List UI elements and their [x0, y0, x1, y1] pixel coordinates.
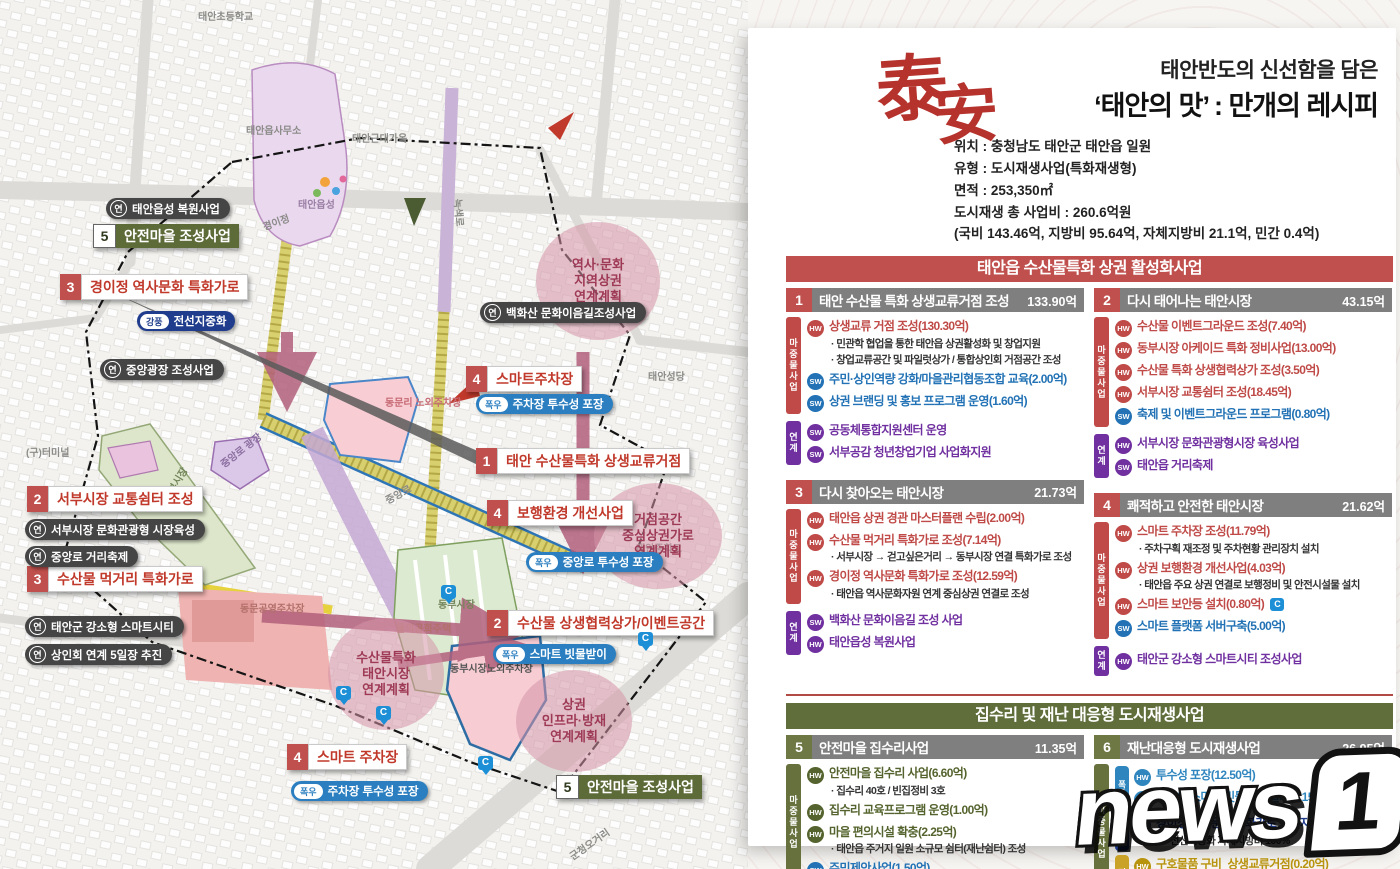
project-sub: · 태안읍 주거지 일원 소규모 쉼터(재난쉼터) 조성 — [831, 841, 1026, 856]
infographic-canvas: 5안전마을 조성사업3경이정 역사문화 특화가로4스마트주차장1태안 수산물특화… — [0, 0, 1400, 869]
pill-text: 주차장 투수성 포장 — [513, 396, 604, 412]
plan-circle-line: 연계계획 — [550, 729, 598, 745]
section-number: 4 — [1094, 493, 1120, 517]
map-label-number: 2 — [487, 610, 508, 636]
link-badge: 연 — [484, 304, 501, 321]
map-area-label: (구)터미널 — [26, 444, 69, 459]
watermark-one-badge: 1 — [1303, 746, 1400, 858]
map-label-text: 경이정 역사문화 특화가로 — [81, 274, 248, 300]
hw-badge: HW — [1115, 386, 1132, 403]
project-text: 주민제안사업(1.50억) — [829, 861, 930, 869]
map-area-label: 태안근대가옥 — [352, 130, 407, 145]
section-header: 2다시 태어나는 태안시장43.15억 — [1094, 288, 1392, 312]
section-3: 3다시 찾아오는 태안시장21.73억마중물사업HW태안읍 상권 경관 마스터플… — [786, 480, 1084, 662]
project-text: 동부시장 아케이드 특화 정비사업(13.00억) — [1137, 341, 1336, 357]
map-area-label: 경이정 — [260, 210, 291, 234]
project-row: SW주민·상인역량 강화/마을관리협동조합 교육(2.00억) — [807, 372, 1084, 390]
map-linked-project-pill: 연백화산 문화이음길조성사업 — [480, 302, 646, 323]
group-label: 연계 — [1094, 646, 1109, 676]
project-text: 주민·상인역량 강화/마을관리협동조합 교육(2.00억) — [829, 372, 1067, 388]
news1-watermark: news1 — [1069, 746, 1400, 868]
map-area-label: 태안초등학교 — [198, 8, 253, 23]
cctv-map-marker: C — [441, 585, 457, 604]
sw-badge: SW — [1115, 620, 1132, 637]
section-title: 다시 찾아오는 태안시장 — [812, 482, 944, 502]
project-row: HW동부시장 아케이드 특화 정비사업(13.00억) — [1115, 341, 1392, 359]
pill-text: 백화산 문화이음길조성사업 — [506, 305, 636, 321]
map-area-label: 태안읍사무소 — [246, 122, 301, 137]
hazard-badge: 폭우 — [496, 647, 525, 662]
map-area-label: 군청오거리 — [566, 824, 612, 863]
map-label-text: 태안 수산물특화 상생교류거점 — [497, 448, 690, 474]
info-panel: 泰 安 태안반도의 신선함을 담은 ‘태안의 맛’ : 만개의 레시피 위치 :… — [748, 28, 1396, 846]
plan-circle-line: 수산물특화 — [356, 650, 416, 666]
project-text: 상권 보행환경 개선사업(4.03억) — [1137, 561, 1360, 577]
project-row: HW태안읍 상권 경관 마스터플랜 수립(2.00억) — [807, 511, 1084, 529]
hw-badge: HW — [1115, 598, 1132, 615]
section-header: 5안전마을 집수리사업11.35억 — [786, 735, 1084, 759]
group-label: 마중물사업 — [786, 317, 801, 414]
section-header: 3다시 찾아오는 태안시장21.73억 — [786, 480, 1084, 504]
link-badge: 연 — [29, 548, 46, 565]
sw-badge: SW — [1115, 459, 1132, 476]
group-label: 연계 — [1094, 434, 1109, 478]
map-project-label: 5안전마을 조성사업 — [93, 224, 239, 248]
project-row: HW경이정 역사문화 특화가로 조성(12.59억)· 태안읍 역사문화자원 연… — [807, 569, 1084, 602]
map-project-label: 2서부시장 교통쉼터 조성 — [27, 486, 203, 512]
section-header: 1태안 수산물 특화 상생교류거점 조성133.90억 — [786, 288, 1084, 312]
sw-badge: SW — [807, 614, 824, 631]
plan-circle-line: 역사·문화 — [572, 257, 624, 273]
map-label-number: 4 — [487, 500, 508, 526]
map-label-text: 안전마을 조성사업 — [116, 224, 239, 248]
cctv-pin — [482, 770, 490, 775]
map-project-label: 2수산물 상생협력상가/이벤트공간 — [487, 610, 714, 636]
project-sub: · 주차구획 재조정 및 주차현황 관리장치 설치 — [1139, 541, 1319, 556]
map-label-text: 안전마을 조성사업 — [579, 775, 702, 799]
cctv-icon: C — [441, 585, 456, 599]
map-project-label: 4보행환경 개선사업 — [487, 500, 633, 526]
section-title: 안전마을 집수리사업 — [812, 737, 929, 757]
project-row: SW백화산 문화이음길 조성 사업 — [807, 613, 1084, 631]
cctv-icon: C — [336, 686, 351, 700]
hazard-badge: 강풍 — [140, 314, 169, 329]
group-label: 연계 — [786, 611, 801, 655]
hw-badge: HW — [807, 512, 824, 529]
hw-badge: HW — [1115, 653, 1132, 670]
map-area-label: 태안성당 — [648, 368, 685, 383]
project-text: 태안읍성 복원사업 — [829, 635, 915, 651]
pill-text: 태안군 강소형 스마트시티 — [51, 619, 174, 635]
plan-circle-line: 상권 — [562, 697, 586, 713]
hw-badge: HW — [807, 636, 824, 653]
map-hazard-pill: 폭우스마트 빗물받이 — [493, 644, 616, 664]
hw-badge: HW — [1115, 562, 1132, 579]
plan-circle-line: 중심상권가로 — [622, 528, 694, 544]
map-linked-project-pill: 연중앙광장 조성사업 — [100, 359, 224, 380]
map-project-label: 4스마트 주차장 — [287, 744, 407, 770]
section-title: 태안 수산물 특화 상생교류거점 조성 — [812, 290, 1009, 310]
plan-circle-line: 태안시장 — [362, 666, 410, 682]
sw-badge: SW — [807, 373, 824, 390]
cctv-icon: C — [638, 632, 653, 646]
hw-badge: HW — [1115, 342, 1132, 359]
link-badge: 연 — [29, 521, 46, 538]
hw-badge: HW — [807, 826, 824, 843]
map-project-label: 4스마트주차장 — [466, 366, 582, 392]
map-project-label: 5안전마을 조성사업 — [556, 775, 702, 799]
project-text: 백화산 문화이음길 조성 사업 — [829, 613, 962, 629]
map-label-text: 스마트 주차장 — [308, 744, 407, 770]
hw-badge: HW — [1115, 525, 1132, 542]
map-label-number: 3 — [60, 274, 81, 300]
section-amount: 11.35억 — [1035, 738, 1084, 757]
hw-badge: HW — [807, 320, 824, 337]
map-project-label: 3수산물 먹거리 특화가로 — [27, 566, 203, 592]
plan-circle-line: 지역상권 — [574, 273, 622, 289]
project-text: 스마트 보안등 설치(0.80억)C — [1137, 597, 1284, 613]
project-row: HW태안읍성 복원사업 — [807, 635, 1084, 653]
sw-badge: SW — [807, 424, 824, 441]
cctv-map-marker: C — [336, 686, 352, 705]
project-sub: · 태안읍 주요 상권 연결로 보행정비 및 안전시설물 설치 — [1139, 577, 1360, 592]
tagline: 태안반도의 신선함을 담은 — [1078, 54, 1378, 84]
group-label: 연계 — [786, 421, 801, 465]
group-label: 마중물사업 — [1094, 522, 1109, 639]
section-number: 5 — [786, 735, 812, 759]
group-label: 마중물사업 — [1094, 317, 1109, 427]
project-row: HW수산물 먹거리 특화가로 조성(7.14억)· 서부시장 → 걷고싶은거리 … — [807, 533, 1084, 566]
project-text: 태안읍 거리축제 — [1137, 458, 1213, 474]
map-linked-project-pill: 연태안읍성 복원사업 — [106, 198, 230, 219]
map-label-number: 4 — [287, 744, 308, 770]
project-text: 수산물 이벤트그라운드 조성(7.40억) — [1137, 319, 1306, 335]
hazard-badge: 폭우 — [529, 555, 558, 570]
map-area-label: 중앙로 — [382, 480, 413, 506]
map-label-number: 3 — [27, 566, 48, 592]
map-label-text: 수산물 상생협력상가/이벤트공간 — [508, 610, 714, 636]
project-text: 스마트 주차장 조성(11.79억) — [1137, 524, 1319, 540]
project-text: 태안군 강소형 스마트시티 조성사업 — [1137, 652, 1302, 668]
plan-circle: 상권인프라·방재연계계획 — [516, 670, 632, 772]
info-area: 면적 : 253,350㎡ — [954, 180, 1319, 202]
hw-badge: HW — [807, 534, 824, 551]
map-area-label: 동문공영주차장 — [240, 600, 304, 615]
project-row: SW스마트 플랫폼 서버구축(5.00억) — [1115, 619, 1392, 637]
section-header: 4쾌적하고 안전한 태안시장21.62억 — [1094, 493, 1392, 517]
section-amount: 43.15억 — [1342, 291, 1392, 310]
project-row: HW수산물 이벤트그라운드 조성(7.40억) — [1115, 319, 1392, 337]
map-label-text: 보행환경 개선사업 — [508, 500, 633, 526]
map-area-label: 중앙로 광장 — [217, 429, 265, 471]
project-text: 공동체통합지원센터 운영 — [829, 423, 947, 439]
project-text: 서부시장 문화관광형시장 육성사업 — [1137, 436, 1299, 452]
section-4: 4쾌적하고 안전한 태안시장21.62억마중물사업HW스마트 주차장 조성(11… — [1094, 493, 1392, 683]
info-location: 위치 : 충청남도 태안군 태안읍 일원 — [954, 136, 1319, 158]
section-title: 쾌적하고 안전한 태안시장 — [1120, 495, 1263, 515]
project-text: 마을 편의시설 확충(2.25억) — [829, 825, 1026, 841]
project-row: HW안전마을 집수리 사업(6.60억)· 집수리 40호 / 빈집정비 3호 — [807, 766, 1084, 799]
cctv-pin — [642, 646, 650, 651]
sw-badge: SW — [1115, 408, 1132, 425]
section-1: 1태안 수산물 특화 상생교류거점 조성133.90억마중물사업HW상생교류 거… — [786, 288, 1084, 472]
project-row: HW수산물 특화 상생협력상가 조성(3.50억) — [1115, 363, 1392, 381]
plan-circle-line: 연계계획 — [362, 682, 410, 698]
project-row: HW서부시장 문화관광형시장 육성사업 — [1115, 436, 1392, 454]
watermark-news-text: news — [1070, 751, 1305, 866]
section-5: 5안전마을 집수리사업11.35억마중물사업HW안전마을 집수리 사업(6.60… — [786, 735, 1084, 869]
cctv-map-marker: C — [638, 632, 654, 651]
cctv-pin — [340, 700, 348, 705]
project-row: SW서부공감 청년창업기업 사업화지원 — [807, 445, 1084, 463]
section-number: 2 — [1094, 288, 1120, 312]
section-2: 2다시 태어나는 태안시장43.15억마중물사업HW수산물 이벤트그라운드 조성… — [1094, 288, 1392, 485]
project-text: 태안읍 상권 경관 마스터플랜 수립(2.00억) — [829, 511, 1024, 527]
pill-text: 스마트 빗물받이 — [530, 646, 607, 662]
map-label-layer: 5안전마을 조성사업3경이정 역사문화 특화가로4스마트주차장1태안 수산물특화… — [0, 0, 748, 869]
map-label-number: 5 — [93, 224, 116, 248]
hw-badge: HW — [1115, 364, 1132, 381]
page-title: ‘태안의 맛’ : 만개의 레시피 — [998, 84, 1378, 123]
project-text: 수산물 먹거리 특화가로 조성(7.14억) — [829, 533, 1072, 549]
map-linked-project-pill: 연태안군 강소형 스마트시티 — [25, 616, 184, 637]
section-number: 1 — [786, 288, 812, 312]
pill-text: 상인회 연계 5일장 추진 — [51, 647, 162, 663]
link-badge: 연 — [104, 361, 121, 378]
project-row: HW태안군 강소형 스마트시티 조성사업 — [1115, 652, 1392, 670]
hw-badge: HW — [1115, 437, 1132, 454]
plan-circle-line: 거점공간 — [634, 512, 682, 528]
project-row: HW상권 보행환경 개선사업(4.03억)· 태안읍 주요 상권 연결로 보행정… — [1115, 561, 1392, 594]
group-label: 마중물사업 — [786, 764, 801, 869]
project-row: HW집수리 교육프로그램 운영(1.00억) — [807, 803, 1084, 821]
cctv-icon: C — [376, 706, 391, 720]
project-text: 서부공감 청년창업기업 사업화지원 — [829, 445, 991, 461]
section-amount: 21.73억 — [1034, 482, 1084, 501]
map-label-text: 서부시장 교통쉼터 조성 — [48, 486, 203, 512]
section-amount: 133.90억 — [1027, 291, 1084, 310]
project-text: 스마트 플랫폼 서버구축(5.00억) — [1137, 619, 1285, 635]
project-row: SW상권 브랜딩 및 홍보 프로그램 운영(1.60억) — [807, 394, 1084, 412]
cctv-pin — [445, 599, 453, 604]
project-row: HW스마트 주차장 조성(11.79억)· 주차구획 재조정 및 주차현황 관리… — [1115, 524, 1392, 557]
info-budget: 도시재생 총 사업비 : 260.6억원 — [954, 202, 1319, 224]
hazard-badge: 폭우 — [294, 784, 323, 799]
table-banner: 집수리 및 재난 대응형 도시재생사업 — [786, 703, 1393, 729]
project-table: 태안읍 수산물특화 상권 활성화사업1태안 수산물 특화 상생교류거점 조성13… — [786, 256, 1393, 696]
project-sub: · 서부시장 → 걷고싶은거리 → 동부시장 연결 특화가로 조성 — [831, 549, 1072, 564]
cctv-map-marker: C — [376, 706, 392, 725]
hw-badge: HW — [807, 767, 824, 784]
info-budget-detail: (국비 143.46억, 지방비 95.64억, 자체지방비 21.1억, 민간… — [954, 223, 1319, 245]
map-label-text: 스마트주차장 — [487, 366, 582, 392]
hazard-badge: 폭우 — [479, 397, 508, 412]
section-number: 3 — [786, 480, 812, 504]
info-type: 유형 : 도시재생사업(특화재생형) — [954, 158, 1319, 180]
project-row: HW스마트 보안등 설치(0.80억)C — [1115, 597, 1392, 615]
cctv-icon: C — [478, 756, 493, 770]
map-project-label: 3경이정 역사문화 특화가로 — [60, 274, 248, 300]
project-text: 수산물 특화 상생협력상가 조성(3.50억) — [1137, 363, 1319, 379]
project-row: SW축제 및 이벤트그라운드 프로그램(0.80억) — [1115, 407, 1392, 425]
map-label-number: 5 — [556, 775, 579, 799]
project-sub: · 창업교류공간 및 파일럿상가 / 통합상인회 거점공간 조성 — [831, 352, 1061, 367]
project-row: SW공동체통합지원센터 운영 — [807, 423, 1084, 441]
project-row: SW주민제안사업(1.50억) — [807, 861, 1084, 869]
project-text: 상생교류 거점 조성(130.30억) — [829, 319, 1061, 335]
map-area-label: 동문리 노외주차장 — [385, 394, 461, 409]
pill-text: 중앙로 거리축제 — [51, 549, 128, 565]
sw-badge: SW — [807, 395, 824, 412]
cctv-map-marker: C — [478, 756, 494, 775]
pill-text: 태안읍성 복원사업 — [132, 201, 220, 217]
hw-badge: HW — [807, 804, 824, 821]
project-sub: · 민관학 협업을 통한 태안읍 상권활성화 및 창업지원 — [831, 336, 1061, 351]
project-info: 위치 : 충청남도 태안군 태안읍 일원 유형 : 도시재생사업(특화재생형) … — [954, 136, 1319, 245]
project-text: 상권 브랜딩 및 홍보 프로그램 운영(1.60억) — [829, 394, 1027, 410]
project-row: HW마을 편의시설 확충(2.25억)· 태안읍 주거지 일원 소규모 쉼터(재… — [807, 825, 1084, 858]
pill-text: 서부시장 문화관광형 시장육성 — [51, 522, 195, 538]
table-banner: 태안읍 수산물특화 상권 활성화사업 — [786, 256, 1393, 282]
pill-text: 중앙로 투수성 포장 — [563, 554, 654, 570]
plan-circle: 거점공간중심상권가로연계계획 — [594, 483, 722, 589]
link-badge: 연 — [29, 646, 46, 663]
project-text: 경이정 역사문화 특화가로 조성(12.59억) — [829, 569, 1029, 585]
cctv-marker: C — [1270, 598, 1284, 611]
section-amount: 21.62억 — [1342, 496, 1392, 515]
project-text: 집수리 교육프로그램 운영(1.00억) — [829, 803, 988, 819]
map-area-label: 태안읍성 — [298, 196, 335, 211]
map-linked-project-pill: 연상인회 연계 5일장 추진 — [25, 644, 172, 665]
map-hazard-pill: 강풍전선지중화 — [137, 311, 235, 331]
map-linked-project-pill: 연서부시장 문화관광형 시장육성 — [25, 519, 205, 540]
link-badge: 연 — [110, 200, 127, 217]
map-label-number: 1 — [476, 448, 497, 474]
pill-text: 전선지중화 — [174, 313, 227, 329]
map-area-label: 녹색로 — [451, 198, 468, 227]
project-row: HW서부시장 교통쉼터 조성(18.45억) — [1115, 385, 1392, 403]
project-sub: · 태안읍 역사문화자원 연계 중심상권 연결로 조성 — [831, 586, 1029, 601]
pill-text: 중앙광장 조성사업 — [126, 362, 214, 378]
group-label: 마중물사업 — [786, 509, 801, 604]
cctv-pin — [380, 720, 388, 725]
section-title: 다시 태어나는 태안시장 — [1120, 290, 1252, 310]
project-text: 안전마을 집수리 사업(6.60억) — [829, 766, 967, 782]
project-row: HW상생교류 거점 조성(130.30억)· 민관학 협업을 통한 태안읍 상권… — [807, 319, 1084, 368]
map-linked-project-pill: 연중앙로 거리축제 — [25, 546, 138, 567]
hw-badge: HW — [807, 570, 824, 587]
project-row: SW태안읍 거리축제 — [1115, 458, 1392, 476]
map-label-text: 수산물 먹거리 특화가로 — [48, 566, 203, 592]
project-text: 서부시장 교통쉼터 조성(18.45억) — [1137, 385, 1291, 401]
hw-badge: HW — [1115, 320, 1132, 337]
map-hazard-pill: 폭우중앙로 투수성 포장 — [526, 552, 663, 572]
map-project-label: 1태안 수산물특화 상생교류거점 — [476, 448, 690, 474]
sw-badge: SW — [807, 446, 824, 463]
map-label-number: 4 — [466, 366, 487, 392]
plan-circle-line: 인프라·방재 — [542, 713, 606, 729]
pill-text: 주차장 투수성 포장 — [328, 783, 419, 799]
link-badge: 연 — [29, 618, 46, 635]
city-map: 5안전마을 조성사업3경이정 역사문화 특화가로4스마트주차장1태안 수산물특화… — [0, 0, 748, 869]
sw-badge: SW — [807, 862, 824, 869]
map-hazard-pill: 폭우주차장 투수성 포장 — [291, 781, 428, 801]
map-label-number: 2 — [27, 486, 48, 512]
project-sub: · 집수리 40호 / 빈집정비 3호 — [831, 783, 967, 798]
map-hazard-pill: 폭우주차장 투수성 포장 — [476, 394, 613, 414]
project-text: 축제 및 이벤트그라운드 프로그램(0.80억) — [1137, 407, 1330, 423]
